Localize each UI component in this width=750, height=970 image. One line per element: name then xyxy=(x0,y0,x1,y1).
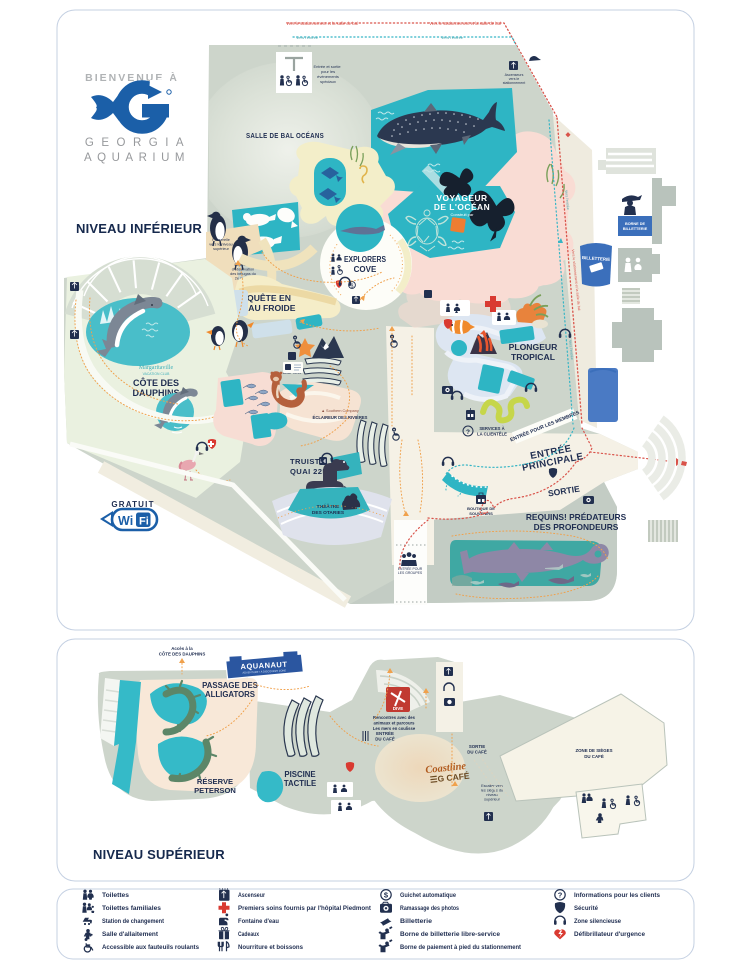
svg-text:EAU FROIDE: EAU FROIDE xyxy=(243,303,296,313)
svg-text:d'observation: d'observation xyxy=(232,268,254,272)
svg-text:Ramassage des photos: Ramassage des photos xyxy=(400,905,459,912)
svg-text:vers le niveau: vers le niveau xyxy=(209,243,232,247)
svg-text:EXPLORERS: EXPLORERS xyxy=(344,255,387,264)
svg-text:DU CAFÉ: DU CAFÉ xyxy=(584,754,604,759)
svg-text:DU CAFÉ: DU CAFÉ xyxy=(467,750,487,755)
svg-text:TROPICAL: TROPICAL xyxy=(511,352,555,362)
svg-text:Guichet automatique: Guichet automatique xyxy=(400,892,456,899)
svg-text:Borne de billetterie libre-ser: Borne de billetterie libre-service xyxy=(400,931,500,938)
svg-text:animaux et parcours: animaux et parcours xyxy=(374,721,416,726)
svg-text:SALLE DE BAL OCÉANS: SALLE DE BAL OCÉANS xyxy=(246,131,324,140)
svg-text:Salle d'allaitement: Salle d'allaitement xyxy=(102,931,159,938)
svg-text:Margaritaville: Margaritaville xyxy=(139,365,174,371)
svg-text:Accès à la: Accès à la xyxy=(171,646,193,651)
svg-text:Fontaine d'eau: Fontaine d'eau xyxy=(238,918,279,925)
svg-text:niveau: niveau xyxy=(486,793,497,797)
svg-text:DE L'OCÉAN: DE L'OCÉAN xyxy=(434,201,490,212)
svg-text:?: ? xyxy=(466,429,470,436)
svg-text:CÔTE DES: CÔTE DES xyxy=(133,377,179,388)
svg-text:SERVICES À: SERVICES À xyxy=(479,426,504,431)
svg-text:PETERSON: PETERSON xyxy=(194,786,236,795)
svg-text:VACATION CLUB: VACATION CLUB xyxy=(143,372,171,376)
svg-text:Défibrillateur d'urgence: Défibrillateur d'urgence xyxy=(574,931,645,938)
svg-text:Cadeaux: Cadeaux xyxy=(238,931,259,938)
svg-text:Nourriture et boissons: Nourriture et boissons xyxy=(238,944,303,951)
svg-text:QUAI 225: QUAI 225 xyxy=(290,467,327,476)
svg-text:NIVEAU SUPÉRIEUR: NIVEAU SUPÉRIEUR xyxy=(93,847,225,862)
svg-text:ALLIGATORS: ALLIGATORS xyxy=(205,690,255,699)
svg-text:DES PROFONDEURS: DES PROFONDEURS xyxy=(534,522,619,532)
svg-text:ÉCLAIREUR DES RIVIÈRES: ÉCLAIREUR DES RIVIÈRES xyxy=(313,415,368,420)
svg-text:Toilettes: Toilettes xyxy=(102,892,129,899)
svg-text:GRATUIT: GRATUIT xyxy=(111,500,154,509)
svg-text:NIVEAU INFÉRIEUR: NIVEAU INFÉRIEUR xyxy=(76,221,202,236)
svg-text:Toilettes familiales: Toilettes familiales xyxy=(102,905,161,912)
svg-text:Passerelle: Passerelle xyxy=(212,238,230,242)
svg-text:Wi: Wi xyxy=(118,514,133,528)
svg-text:QUÊTE EN: QUÊTE EN xyxy=(247,292,291,303)
svg-text:stationnement: stationnement xyxy=(503,81,526,85)
svg-text:▲ Southern Company: ▲ Southern Company xyxy=(321,409,359,413)
svg-text:supérieur: supérieur xyxy=(484,798,501,802)
svg-text:PASSAGE DES: PASSAGE DES xyxy=(202,681,258,690)
svg-text:CÔTE DES DAUPHINS: CÔTE DES DAUPHINS xyxy=(159,652,206,657)
svg-text:DES OTARIES: DES OTARIES xyxy=(312,510,345,516)
svg-text:les sièges du: les sièges du xyxy=(481,789,503,793)
svg-text:GEORGIA: GEORGIA xyxy=(85,137,191,149)
svg-text:ZONE DE SIÈGES: ZONE DE SIÈGES xyxy=(575,748,612,753)
svg-text:COVE: COVE xyxy=(354,265,377,274)
svg-text:?: ? xyxy=(558,891,563,900)
svg-text:Billetterie: Billetterie xyxy=(400,918,432,925)
svg-text:BILLETTERIE: BILLETTERIE xyxy=(623,227,648,231)
svg-text:TACTILE: TACTILE xyxy=(284,779,316,788)
svg-text:Rencontres avec des: Rencontres avec des xyxy=(373,715,416,720)
svg-text:REQUINS! PRÉDATEURS: REQUINS! PRÉDATEURS xyxy=(526,511,627,522)
svg-text:Sécurité: Sécurité xyxy=(574,905,598,912)
svg-text:Vers l'entrée: Vers l'entrée xyxy=(441,35,464,40)
svg-text:BORNE DE: BORNE DE xyxy=(625,222,646,226)
svg-text:Escalier vers: Escalier vers xyxy=(481,784,503,788)
svg-text:PLONGEUR: PLONGEUR xyxy=(509,342,558,352)
svg-text:SORTIE: SORTIE xyxy=(469,744,485,749)
svg-text:Station de changement: Station de changement xyxy=(102,918,165,925)
svg-text:LA CLIENTÈLE: LA CLIENTÈLE xyxy=(477,432,507,437)
svg-text:Ascenseur: Ascenseur xyxy=(238,892,265,899)
svg-text:Borne de paiement à pied du st: Borne de paiement à pied du stationnemen… xyxy=(400,944,522,951)
svg-text:supérieur: supérieur xyxy=(213,247,230,251)
svg-text:Zone silencieuse: Zone silencieuse xyxy=(574,918,621,925)
svg-text:LES GROUPES: LES GROUPES xyxy=(398,571,423,575)
svg-text:DIVE: DIVE xyxy=(393,706,404,711)
svg-text:Vers le stationnement et la sa: Vers le stationnement et la salle de bal xyxy=(286,21,358,26)
svg-text:Informations pour les clients: Informations pour les clients xyxy=(574,892,660,899)
svg-text:Construit par: Construit par xyxy=(451,212,475,217)
svg-text:DU CAFÉ: DU CAFÉ xyxy=(375,737,395,742)
svg-text:AQUARIUM: AQUARIUM xyxy=(84,152,190,164)
svg-text:spéciaux: spéciaux xyxy=(320,79,336,84)
svg-text:Vers l'entrée: Vers l'entrée xyxy=(296,35,319,40)
svg-text:RÉSERVE: RÉSERVE xyxy=(197,777,233,786)
svg-text:Fi: Fi xyxy=(139,516,149,528)
svg-text:Accessible aux fauteuils roula: Accessible aux fauteuils roulants xyxy=(102,944,199,951)
svg-text:PISCINE: PISCINE xyxy=(284,770,315,779)
svg-text:ENTRÉE: ENTRÉE xyxy=(376,731,394,736)
svg-text:Vers le stationnement et la sa: Vers le stationnement et la salle de bal xyxy=(429,21,501,26)
svg-text:Premiers soins fournis par l'h: Premiers soins fournis par l'hôpital Pie… xyxy=(238,905,372,912)
svg-text:TRUIST: TRUIST xyxy=(290,457,320,466)
